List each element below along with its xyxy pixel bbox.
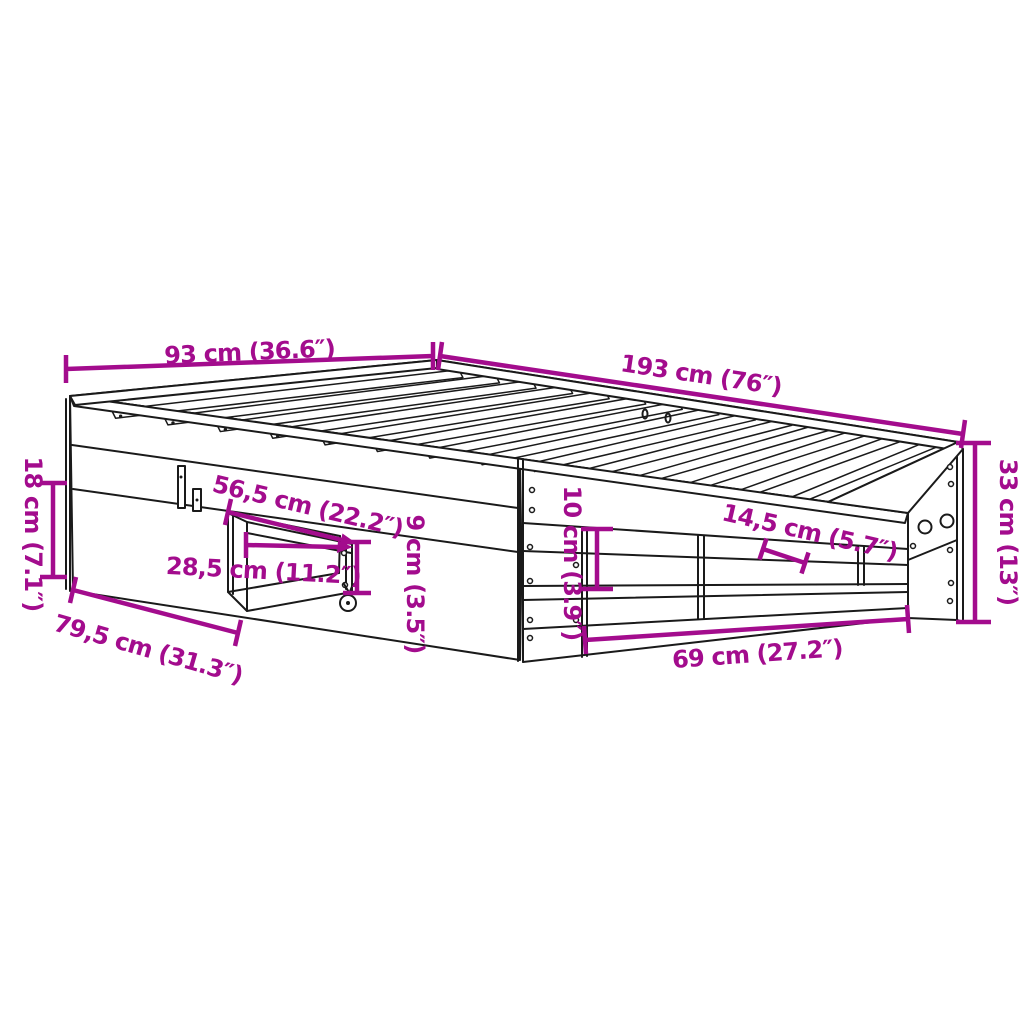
bracket-screw — [180, 476, 183, 479]
caster-hub — [346, 601, 350, 605]
bed-frame-dimension-diagram: 93 cm (36.6″) 193 cm (76″) 33 cm (13″) 1… — [0, 0, 1024, 1024]
dimension-label-drawer-height: 9 cm (3.5″) — [401, 514, 429, 653]
dimension-label-bed-width: 93 cm (36.6″) — [164, 334, 336, 369]
dimension-label-frame-height: 33 cm (13″) — [994, 459, 1022, 606]
slat-screw — [171, 421, 174, 424]
bed-frame-drawing — [66, 360, 963, 662]
slat-screw — [119, 415, 122, 418]
drawer-screw — [342, 551, 347, 556]
dimension-label-side-rail-height: 18 cm (7.1″) — [19, 457, 47, 612]
dimension-side-rail-height: 18 cm (7.1″) — [19, 457, 67, 612]
slat-bracket — [178, 466, 185, 508]
dimension-frame-height: 33 cm (13″) — [956, 443, 1022, 622]
diagram-svg: 93 cm (36.6″) 193 cm (76″) 33 cm (13″) 1… — [0, 0, 1024, 1024]
bracket-screw — [196, 499, 199, 502]
head-panel-left-edge — [66, 396, 70, 591]
dimension-label-opening-height: 10 cm (3.9″) — [558, 486, 586, 641]
dimension-label-drawer-extension-bottom: 79,5 cm (31.3″) — [51, 609, 246, 690]
